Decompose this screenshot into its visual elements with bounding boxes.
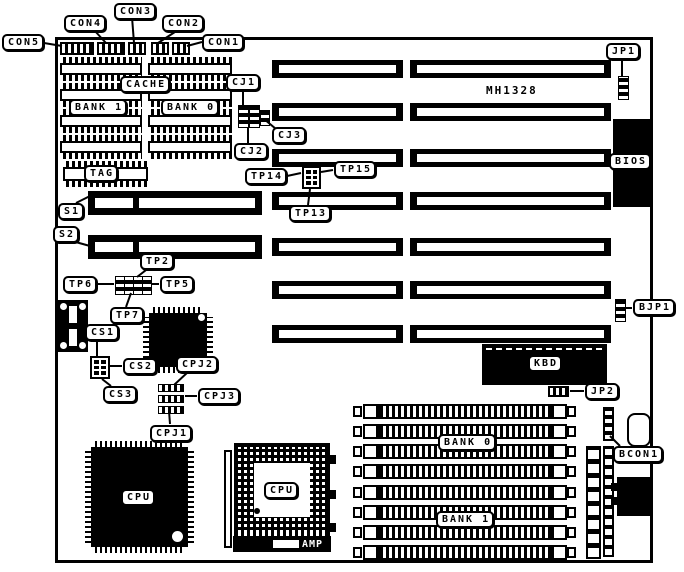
pga-tab (330, 523, 336, 532)
label-con1: CON1 (202, 34, 244, 51)
simm-slot (378, 545, 552, 560)
power-connector (586, 446, 601, 559)
chipset-pin1-dot (198, 314, 205, 321)
din-keyboard-connector (617, 477, 652, 516)
isa-slot (272, 325, 403, 343)
isa-slot (410, 60, 611, 78)
label-cs2: CS2 (123, 358, 157, 375)
label-tp15: TP15 (334, 161, 376, 178)
label-tp14: TP14 (245, 168, 287, 185)
tp13-14-15-jumper-block (302, 166, 321, 189)
jp2-jumper (548, 386, 569, 397)
simm-slot (378, 404, 552, 419)
label-con5: CON5 (2, 34, 44, 51)
label-cpj3: CPJ3 (198, 388, 240, 405)
cj2-jumper (249, 105, 260, 128)
isa-slot (272, 238, 403, 256)
label-tp7: TP7 (110, 307, 144, 324)
isa-slot (410, 281, 611, 299)
cpu-qfp-pin1-dot (172, 531, 183, 542)
isa-slot (272, 103, 403, 121)
label-tp5: TP5 (160, 276, 194, 293)
din-connector-tab (611, 483, 618, 491)
label-s1: S1 (58, 203, 84, 220)
model-number: MH1328 (486, 84, 538, 97)
s1-slot (88, 191, 262, 215)
bjp1-jumper (615, 299, 626, 322)
label-cs1: CS1 (85, 324, 119, 341)
label-cj1: CJ1 (226, 74, 260, 91)
kbd-chip-socket-line (486, 348, 603, 350)
isa-slot (272, 281, 403, 299)
jp1-jumper (618, 76, 629, 100)
label-jp2: JP2 (585, 383, 619, 400)
label-bjp1: BJP1 (633, 299, 675, 316)
cpj-jumper-block (158, 384, 184, 414)
label-cs3: CS3 (103, 386, 137, 403)
isa-slot (272, 60, 403, 78)
label-con3: CON3 (114, 3, 156, 20)
pga-pin1-dot (254, 508, 260, 514)
label-con2: CON2 (162, 15, 204, 32)
label-s2: S2 (53, 226, 79, 243)
s2-slot (88, 235, 262, 259)
label-cj3: CJ3 (272, 127, 306, 144)
label-bcon1: BCON1 (613, 446, 663, 463)
label-cpj1: CPJ1 (150, 425, 192, 442)
bracket-hole (79, 342, 86, 349)
header-con2 (151, 42, 169, 55)
label-con4: CON4 (64, 15, 106, 32)
label-cpu-pga: CPU (264, 482, 298, 499)
keyboard-port-outline (627, 413, 651, 447)
label-kbd: KBD (528, 355, 562, 372)
cache-chip (148, 135, 232, 159)
bracket-slot (69, 306, 77, 323)
label-cache: CACHE (120, 76, 170, 93)
isa-slot (410, 325, 611, 343)
bracket-hole (60, 303, 67, 310)
isa-slot (410, 238, 611, 256)
isa-slot (410, 192, 611, 210)
label-cj2: CJ2 (234, 143, 268, 160)
cj3-jumper (260, 110, 270, 126)
bracket-slot (69, 329, 77, 346)
label-simm-bank0: BANK 0 (438, 434, 496, 451)
isa-slot (410, 103, 611, 121)
label-cpu-qfp: CPU (121, 489, 155, 506)
din-connector-tab (611, 497, 618, 505)
bcon1-connector (603, 407, 614, 441)
simm-slot (378, 485, 552, 500)
label-tp2: TP2 (140, 253, 174, 270)
motherboard-diagram: MH1328 AMP (0, 0, 684, 572)
label-tp13: TP13 (289, 205, 331, 222)
label-cache-bank0: BANK 0 (161, 99, 219, 116)
label-cpj2: CPJ2 (176, 356, 218, 373)
pga-tab (330, 455, 336, 464)
label-jp1: JP1 (606, 43, 640, 60)
header-con4 (97, 42, 125, 55)
label-tag: TAG (84, 165, 118, 182)
pga-retention-bar (224, 450, 232, 548)
amp-window (273, 540, 299, 548)
label-simm-bank1: BANK 1 (436, 511, 494, 528)
bracket-hole (60, 342, 67, 349)
amp-label: AMP (302, 539, 323, 550)
header-con1 (172, 42, 190, 55)
bracket-hole (79, 303, 86, 310)
cs-jumper-block (90, 356, 110, 379)
tp-jumper (142, 276, 152, 295)
pga-tab (330, 490, 336, 499)
cj1-jumper (238, 105, 249, 128)
header-con5 (60, 42, 94, 55)
label-bios: BIOS (609, 153, 651, 170)
label-tp6: TP6 (63, 276, 97, 293)
label-cache-bank1: BANK 1 (69, 99, 127, 116)
isa-slot (410, 149, 611, 167)
header-con3 (128, 42, 146, 55)
cache-chip (60, 135, 142, 159)
simm-slot (378, 464, 552, 479)
